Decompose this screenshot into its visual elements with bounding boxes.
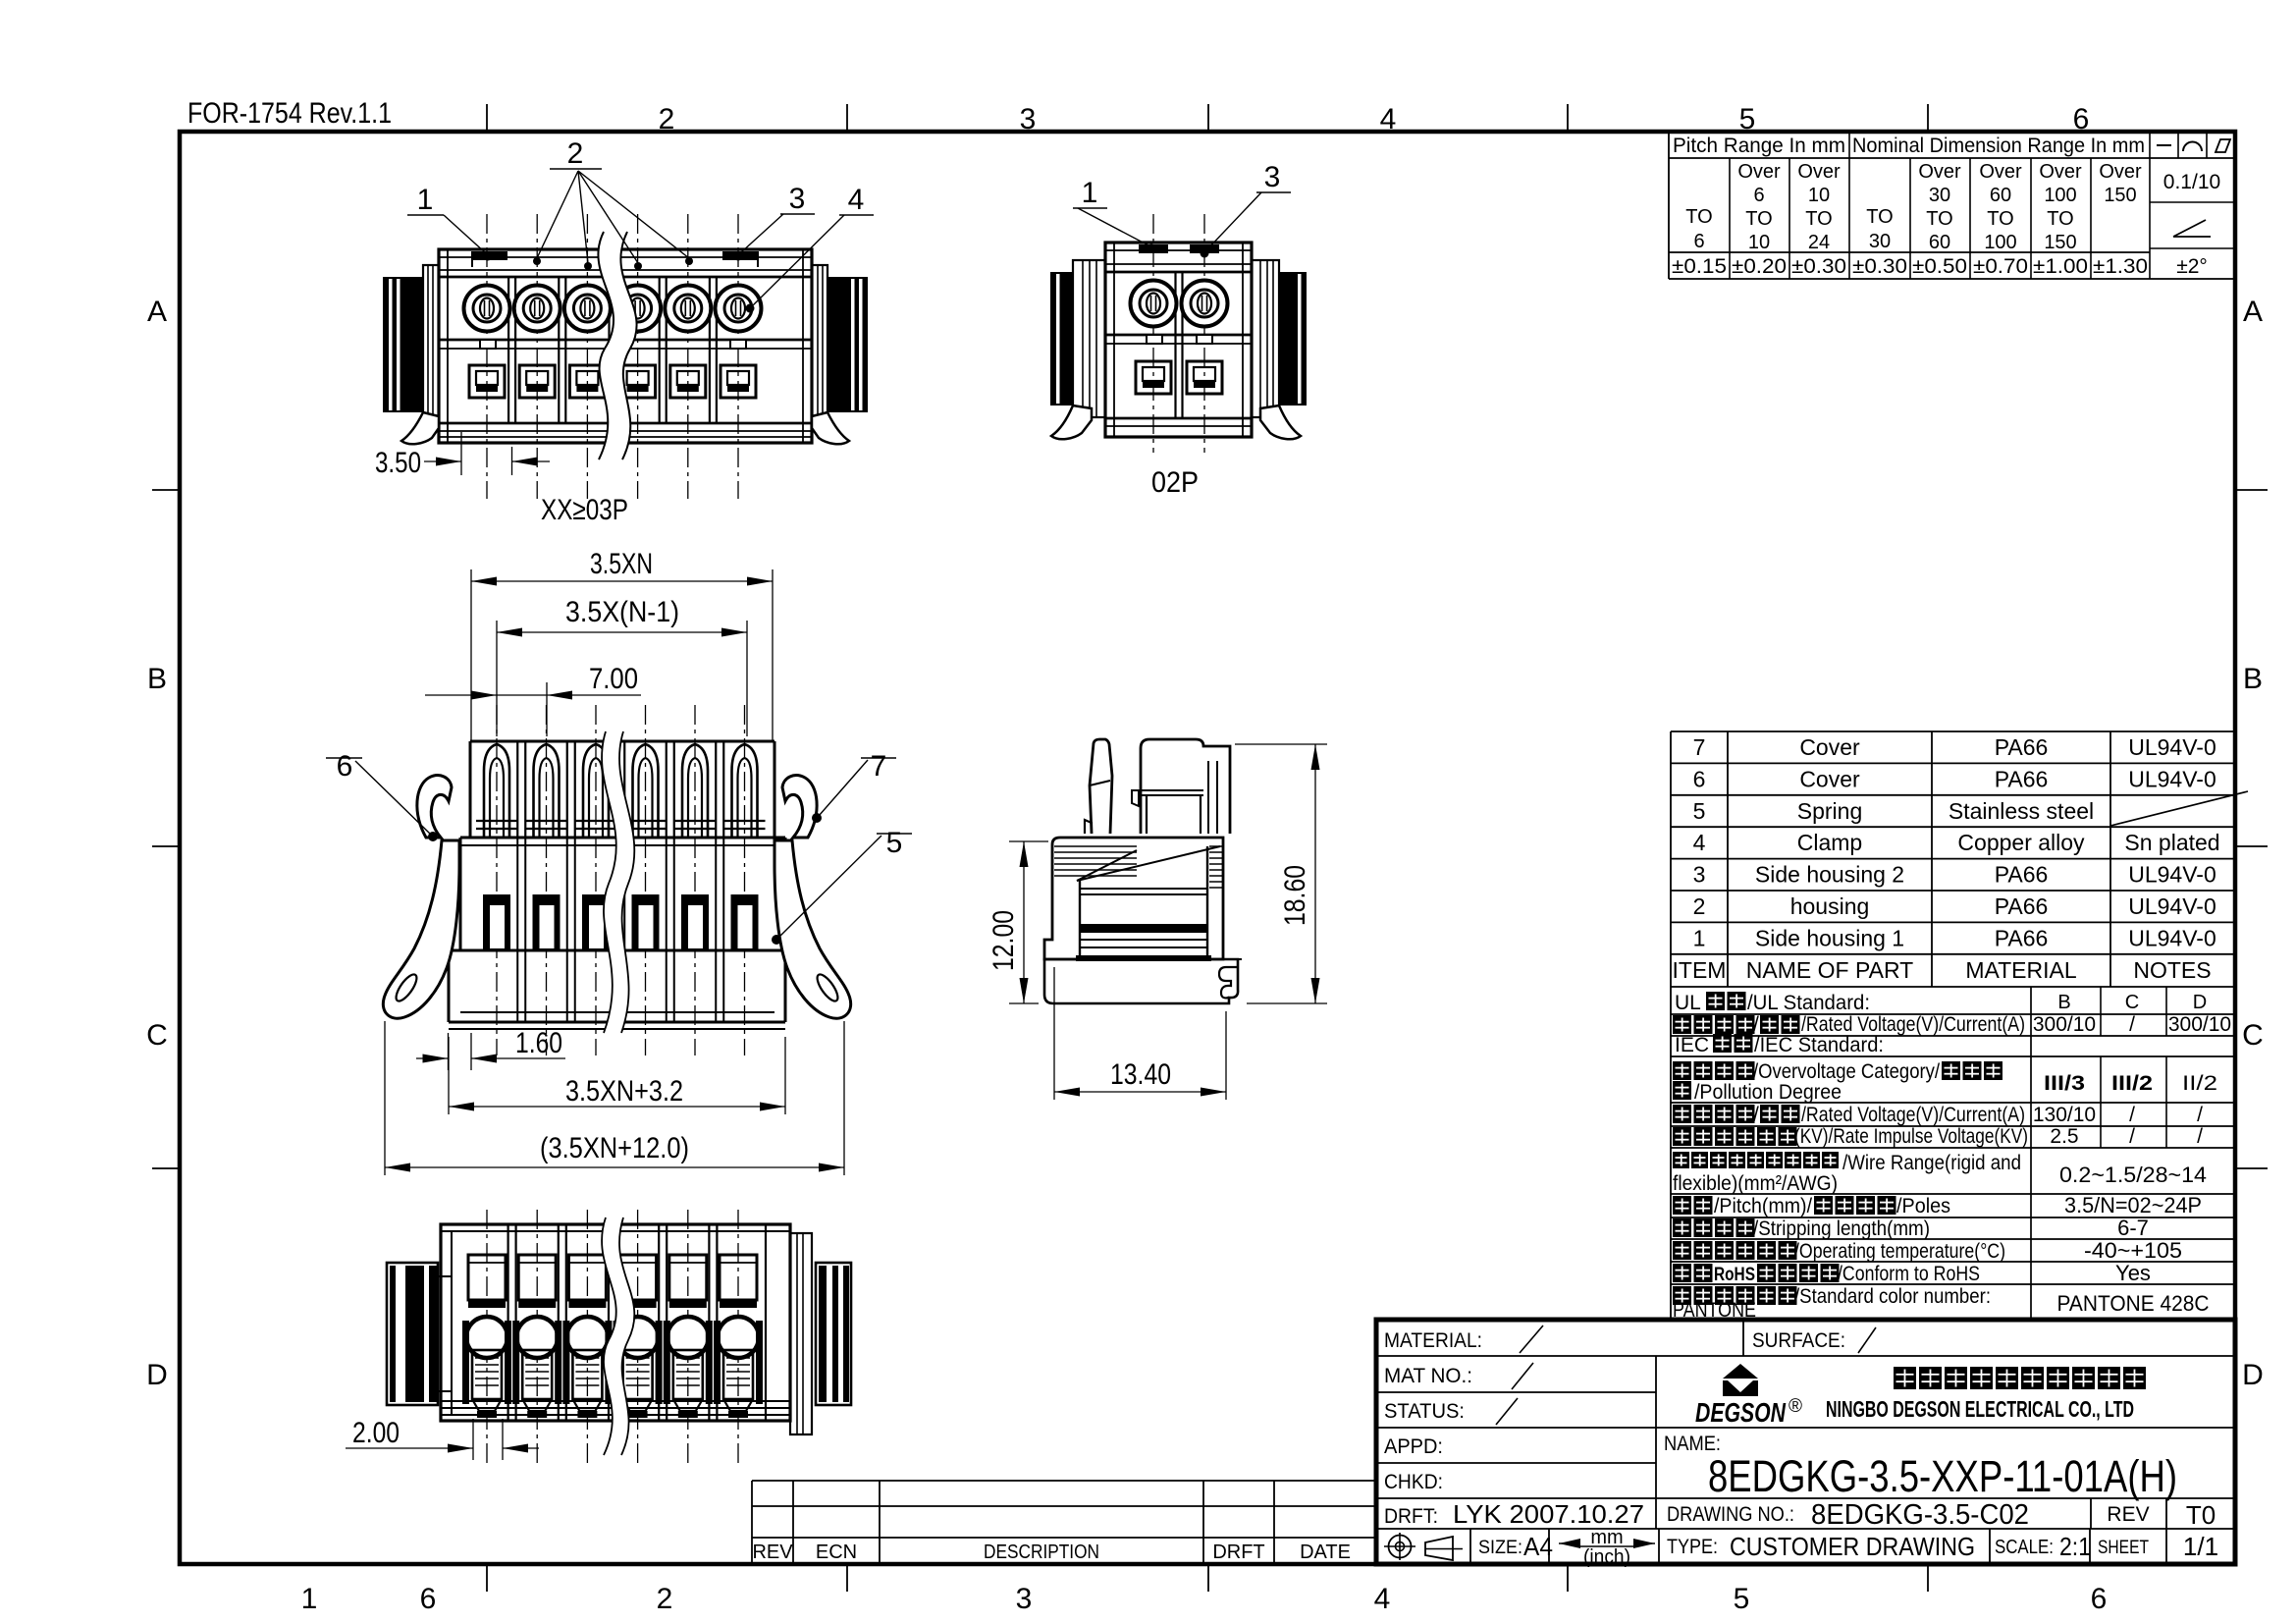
svg-text:CUSTOMER DRAWING: CUSTOMER DRAWING bbox=[1730, 1532, 1975, 1561]
svg-text:18.60: 18.60 bbox=[1279, 865, 1311, 926]
svg-text:3: 3 bbox=[1264, 161, 1281, 193]
svg-text:±1.30: ±1.30 bbox=[2093, 255, 2148, 278]
svg-text:3.5X(N-1): 3.5X(N-1) bbox=[565, 596, 679, 628]
svg-text:D: D bbox=[2193, 992, 2207, 1013]
svg-text:1/1: 1/1 bbox=[2183, 1532, 2218, 1561]
svg-text:/Pollution Degree: /Pollution Degree bbox=[1694, 1081, 1842, 1104]
svg-text:SHEET: SHEET bbox=[2098, 1538, 2149, 1558]
svg-text:±0.15: ±0.15 bbox=[1672, 255, 1727, 278]
svg-text:D: D bbox=[146, 1359, 168, 1391]
svg-text:6: 6 bbox=[2073, 103, 2090, 135]
svg-text:8EDGKG-3.5-XXP-11-01A(H): 8EDGKG-3.5-XXP-11-01A(H) bbox=[1708, 1451, 2177, 1501]
svg-text:DRAWING NO.:: DRAWING NO.: bbox=[1667, 1503, 1794, 1526]
svg-text:1: 1 bbox=[1082, 177, 1098, 209]
svg-text:MATERIAL:: MATERIAL: bbox=[1384, 1329, 1482, 1352]
svg-text:/Pitch(mm)/: /Pitch(mm)/ bbox=[1714, 1195, 1812, 1217]
svg-text:300/10: 300/10 bbox=[2033, 1013, 2096, 1036]
svg-text:Side housing 1: Side housing 1 bbox=[1755, 925, 1904, 950]
svg-text:STATUS:: STATUS: bbox=[1384, 1400, 1465, 1423]
svg-text:5: 5 bbox=[1693, 798, 1706, 824]
svg-text:III/3: III/3 bbox=[2044, 1072, 2085, 1095]
svg-text:150: 150 bbox=[2104, 185, 2136, 206]
svg-text:A: A bbox=[2243, 296, 2263, 328]
svg-text:MATERIAL: MATERIAL bbox=[1965, 957, 2077, 983]
svg-text:2: 2 bbox=[1693, 893, 1706, 919]
svg-text:TO: TO bbox=[1987, 208, 2013, 230]
svg-text:3: 3 bbox=[789, 183, 806, 215]
svg-text:UL94V-0: UL94V-0 bbox=[2128, 925, 2216, 950]
svg-text:UL94V-0: UL94V-0 bbox=[2128, 862, 2216, 888]
svg-text:±0.30: ±0.30 bbox=[1852, 255, 1907, 278]
svg-text:±0.50: ±0.50 bbox=[1912, 255, 1967, 278]
svg-text:B: B bbox=[2057, 992, 2070, 1013]
svg-text:2.00: 2.00 bbox=[352, 1417, 400, 1449]
svg-text:2:1: 2:1 bbox=[2059, 1532, 2091, 1561]
svg-text:Yes: Yes bbox=[2115, 1261, 2151, 1285]
svg-text:1: 1 bbox=[417, 184, 434, 216]
svg-text:PA66: PA66 bbox=[1995, 862, 2049, 888]
svg-text:UL94V-0: UL94V-0 bbox=[2128, 893, 2216, 919]
svg-text:TO: TO bbox=[1805, 208, 1832, 230]
svg-text:/: / bbox=[2129, 1125, 2135, 1148]
svg-text:C: C bbox=[146, 1019, 168, 1052]
svg-text:TO: TO bbox=[1685, 206, 1712, 228]
svg-text:5: 5 bbox=[886, 827, 903, 859]
svg-text:12.00: 12.00 bbox=[988, 910, 1020, 971]
svg-text:8EDGKG-3.5-C02: 8EDGKG-3.5-C02 bbox=[1811, 1499, 2029, 1531]
svg-text:/Wire Range(rigid and: /Wire Range(rigid and bbox=[1842, 1152, 2021, 1174]
svg-text:B: B bbox=[147, 663, 167, 695]
svg-text:6: 6 bbox=[1693, 766, 1706, 791]
svg-text:1.60: 1.60 bbox=[515, 1027, 562, 1059]
svg-text:/Stripping length(mm): /Stripping length(mm) bbox=[1753, 1217, 1930, 1240]
svg-text:SCALE:: SCALE: bbox=[1995, 1537, 2054, 1558]
svg-text:100: 100 bbox=[1984, 232, 2016, 253]
svg-text:LYK 2007.10.27: LYK 2007.10.27 bbox=[1453, 1499, 1644, 1529]
svg-text:housing: housing bbox=[1790, 893, 1870, 919]
svg-text:APPD:: APPD: bbox=[1384, 1435, 1443, 1458]
svg-text:DESCRIPTION: DESCRIPTION bbox=[984, 1542, 1099, 1563]
svg-text:Over: Over bbox=[2099, 161, 2142, 183]
svg-text:PA66: PA66 bbox=[1995, 766, 2049, 791]
svg-text:6: 6 bbox=[420, 1583, 437, 1615]
svg-text:1: 1 bbox=[301, 1583, 318, 1615]
svg-text:DEGSON: DEGSON bbox=[1695, 1397, 1787, 1428]
svg-text:Pitch Range In mm: Pitch Range In mm bbox=[1673, 135, 1845, 157]
svg-text:IEC: IEC bbox=[1675, 1034, 1709, 1056]
svg-text:/: / bbox=[2129, 1104, 2135, 1126]
svg-text:3.5/N=02~24P: 3.5/N=02~24P bbox=[2064, 1193, 2202, 1217]
svg-text:B: B bbox=[2243, 663, 2263, 695]
svg-text:T0: T0 bbox=[2186, 1500, 2216, 1530]
svg-text:C: C bbox=[2125, 992, 2139, 1013]
svg-text:/Operating temperature(°C): /Operating temperature(°C) bbox=[1794, 1240, 2005, 1263]
svg-text:(inch): (inch) bbox=[1583, 1546, 1630, 1568]
svg-text:NOTES: NOTES bbox=[2133, 957, 2211, 983]
svg-text:MAT NO.:: MAT NO.: bbox=[1384, 1365, 1472, 1387]
svg-text:CHKD:: CHKD: bbox=[1384, 1471, 1443, 1493]
svg-text:30: 30 bbox=[1869, 231, 1891, 252]
svg-text:3.5XN: 3.5XN bbox=[590, 548, 653, 580]
svg-text:NAME OF PART: NAME OF PART bbox=[1746, 957, 1913, 983]
svg-text:60: 60 bbox=[1990, 185, 2011, 206]
svg-text:Over: Over bbox=[1797, 161, 1841, 183]
svg-text:C: C bbox=[2242, 1019, 2264, 1052]
svg-text:4: 4 bbox=[1693, 830, 1706, 855]
svg-text:TO: TO bbox=[2047, 208, 2073, 230]
svg-text:3: 3 bbox=[1020, 103, 1037, 135]
svg-text:0.1/10: 0.1/10 bbox=[2163, 171, 2220, 193]
svg-text:/: / bbox=[1753, 1013, 1759, 1036]
svg-text:SIZE:: SIZE: bbox=[1478, 1538, 1522, 1558]
svg-text:±0.30: ±0.30 bbox=[1791, 255, 1846, 278]
svg-text:7: 7 bbox=[871, 750, 887, 783]
svg-text:/IEC Standard:: /IEC Standard: bbox=[1754, 1034, 1884, 1056]
svg-text:/: / bbox=[2129, 1013, 2135, 1036]
svg-text:130/10: 130/10 bbox=[2033, 1104, 2096, 1126]
svg-text:6: 6 bbox=[1753, 185, 1764, 206]
svg-text:TO: TO bbox=[1866, 206, 1893, 228]
svg-text:ECN: ECN bbox=[816, 1542, 857, 1563]
svg-text:XX≥03P: XX≥03P bbox=[541, 494, 628, 526]
svg-text:6: 6 bbox=[337, 750, 353, 783]
svg-text:3: 3 bbox=[1016, 1583, 1033, 1615]
svg-text:2: 2 bbox=[567, 137, 584, 170]
svg-text:/UL Standard:: /UL Standard: bbox=[1747, 992, 1870, 1014]
svg-text:0.2~1.5/28~14: 0.2~1.5/28~14 bbox=[2059, 1163, 2207, 1187]
svg-text:6: 6 bbox=[2091, 1583, 2108, 1615]
svg-text:/Standard color number:: /Standard color number: bbox=[1794, 1285, 1991, 1308]
svg-text:TO: TO bbox=[1926, 208, 1952, 230]
svg-text:2.5: 2.5 bbox=[2050, 1125, 2078, 1148]
svg-text:/Overvoltage Category/: /Overvoltage Category/ bbox=[1753, 1060, 1940, 1083]
svg-text:/: / bbox=[1753, 1104, 1759, 1126]
svg-text:D: D bbox=[2242, 1359, 2264, 1391]
svg-text:±0.20: ±0.20 bbox=[1732, 255, 1787, 278]
svg-text:PA66: PA66 bbox=[1995, 893, 2049, 919]
svg-text:(KV)/Rate Impulse Voltage(KV): (KV)/Rate Impulse Voltage(KV) bbox=[1794, 1125, 2028, 1148]
svg-text:02P: 02P bbox=[1151, 466, 1199, 499]
svg-text:PANTONE 428C: PANTONE 428C bbox=[2057, 1291, 2210, 1316]
svg-text:4: 4 bbox=[1380, 103, 1397, 135]
svg-text:±2°: ±2° bbox=[2176, 255, 2208, 278]
svg-text:Over: Over bbox=[2039, 161, 2082, 183]
svg-text:1: 1 bbox=[1693, 925, 1706, 950]
svg-text:DRFT: DRFT bbox=[1212, 1542, 1264, 1563]
svg-text:2: 2 bbox=[657, 1583, 673, 1615]
svg-text:±0.70: ±0.70 bbox=[1973, 255, 2028, 278]
svg-text:Over: Over bbox=[1737, 161, 1781, 183]
svg-text:TYPE:: TYPE: bbox=[1667, 1536, 1718, 1558]
svg-text:2: 2 bbox=[659, 103, 675, 135]
svg-text:A4: A4 bbox=[1523, 1532, 1553, 1561]
svg-text:PA66: PA66 bbox=[1995, 925, 2049, 950]
svg-text:3: 3 bbox=[1693, 862, 1706, 888]
svg-text:10: 10 bbox=[1748, 232, 1770, 253]
svg-text:DATE: DATE bbox=[1300, 1542, 1351, 1563]
svg-text:Copper alloy: Copper alloy bbox=[1957, 830, 2085, 855]
svg-text:®: ® bbox=[1789, 1396, 1802, 1417]
svg-text:13.40: 13.40 bbox=[1110, 1058, 1171, 1091]
svg-text:150: 150 bbox=[2044, 232, 2076, 253]
svg-text:5: 5 bbox=[1739, 103, 1756, 135]
svg-text:ITEM: ITEM bbox=[1673, 957, 1727, 983]
svg-text:REV: REV bbox=[2107, 1503, 2149, 1526]
svg-text:/: / bbox=[2197, 1104, 2203, 1126]
svg-text:300/10: 300/10 bbox=[2168, 1013, 2231, 1036]
svg-text:Over: Over bbox=[1979, 161, 2022, 183]
svg-text:Side housing 2: Side housing 2 bbox=[1755, 862, 1904, 888]
svg-text:4: 4 bbox=[1374, 1583, 1391, 1615]
svg-text:Stainless steel: Stainless steel bbox=[1949, 798, 2094, 824]
svg-text:/: / bbox=[2197, 1125, 2203, 1148]
svg-text:DRFT:: DRFT: bbox=[1384, 1505, 1438, 1528]
svg-text:Spring: Spring bbox=[1797, 798, 1862, 824]
svg-text:5: 5 bbox=[1734, 1583, 1750, 1615]
svg-text:60: 60 bbox=[1929, 232, 1950, 253]
svg-text:SURFACE:: SURFACE: bbox=[1752, 1329, 1845, 1352]
svg-text:Cover: Cover bbox=[1799, 766, 1860, 791]
svg-text:7: 7 bbox=[1693, 734, 1706, 760]
svg-text:Nominal Dimension Range In mm: Nominal Dimension Range In mm bbox=[1852, 135, 2145, 157]
svg-text:FOR-1754 Rev.1.1: FOR-1754 Rev.1.1 bbox=[187, 97, 392, 130]
svg-text:flexible)(mm²/AWG): flexible)(mm²/AWG) bbox=[1673, 1172, 1838, 1195]
svg-text:REV: REV bbox=[752, 1542, 793, 1563]
svg-text:(3.5XN+12.0): (3.5XN+12.0) bbox=[540, 1132, 689, 1164]
svg-text:NINGBO DEGSON ELECTRICAL CO.,: NINGBO DEGSON ELECTRICAL CO., LTD bbox=[1826, 1396, 2134, 1422]
svg-text:30: 30 bbox=[1929, 185, 1950, 206]
svg-text:mm: mm bbox=[1590, 1527, 1623, 1548]
svg-text:TO: TO bbox=[1745, 208, 1772, 230]
svg-text:7.00: 7.00 bbox=[589, 663, 638, 695]
svg-text:±1.00: ±1.00 bbox=[2033, 255, 2088, 278]
svg-text:UL94V-0: UL94V-0 bbox=[2128, 734, 2216, 760]
svg-text:100: 100 bbox=[2044, 185, 2076, 206]
svg-text:10: 10 bbox=[1808, 185, 1830, 206]
svg-text:Over: Over bbox=[1918, 161, 1961, 183]
svg-text:Cover: Cover bbox=[1799, 734, 1860, 760]
svg-text:6-7: 6-7 bbox=[2117, 1216, 2149, 1240]
svg-text:A: A bbox=[147, 296, 167, 328]
svg-text:3.5XN+3.2: 3.5XN+3.2 bbox=[565, 1075, 683, 1108]
svg-text:3.50: 3.50 bbox=[375, 447, 421, 479]
svg-text:6: 6 bbox=[1693, 231, 1704, 252]
svg-text:24: 24 bbox=[1808, 232, 1830, 253]
svg-text:III/2: III/2 bbox=[2111, 1072, 2153, 1095]
svg-text:Sn plated: Sn plated bbox=[2124, 830, 2219, 855]
svg-text:/Conform to RoHS: /Conform to RoHS bbox=[1838, 1263, 1980, 1285]
svg-text:-40~+105: -40~+105 bbox=[2084, 1238, 2182, 1263]
svg-text:PA66: PA66 bbox=[1995, 734, 2049, 760]
svg-text:/Rated Voltage(V)/Current(A): /Rated Voltage(V)/Current(A) bbox=[1801, 1104, 2025, 1126]
svg-text:/Rated Voltage(V)/Current(A): /Rated Voltage(V)/Current(A) bbox=[1801, 1013, 2025, 1036]
svg-text:II/2: II/2 bbox=[2182, 1072, 2217, 1095]
svg-text:RoHS: RoHS bbox=[1714, 1265, 1755, 1285]
svg-text:4: 4 bbox=[848, 184, 865, 216]
svg-text:UL: UL bbox=[1675, 992, 1701, 1014]
svg-text:Clamp: Clamp bbox=[1797, 830, 1862, 855]
svg-text:UL94V-0: UL94V-0 bbox=[2128, 766, 2216, 791]
svg-text:/Poles: /Poles bbox=[1896, 1195, 1950, 1217]
